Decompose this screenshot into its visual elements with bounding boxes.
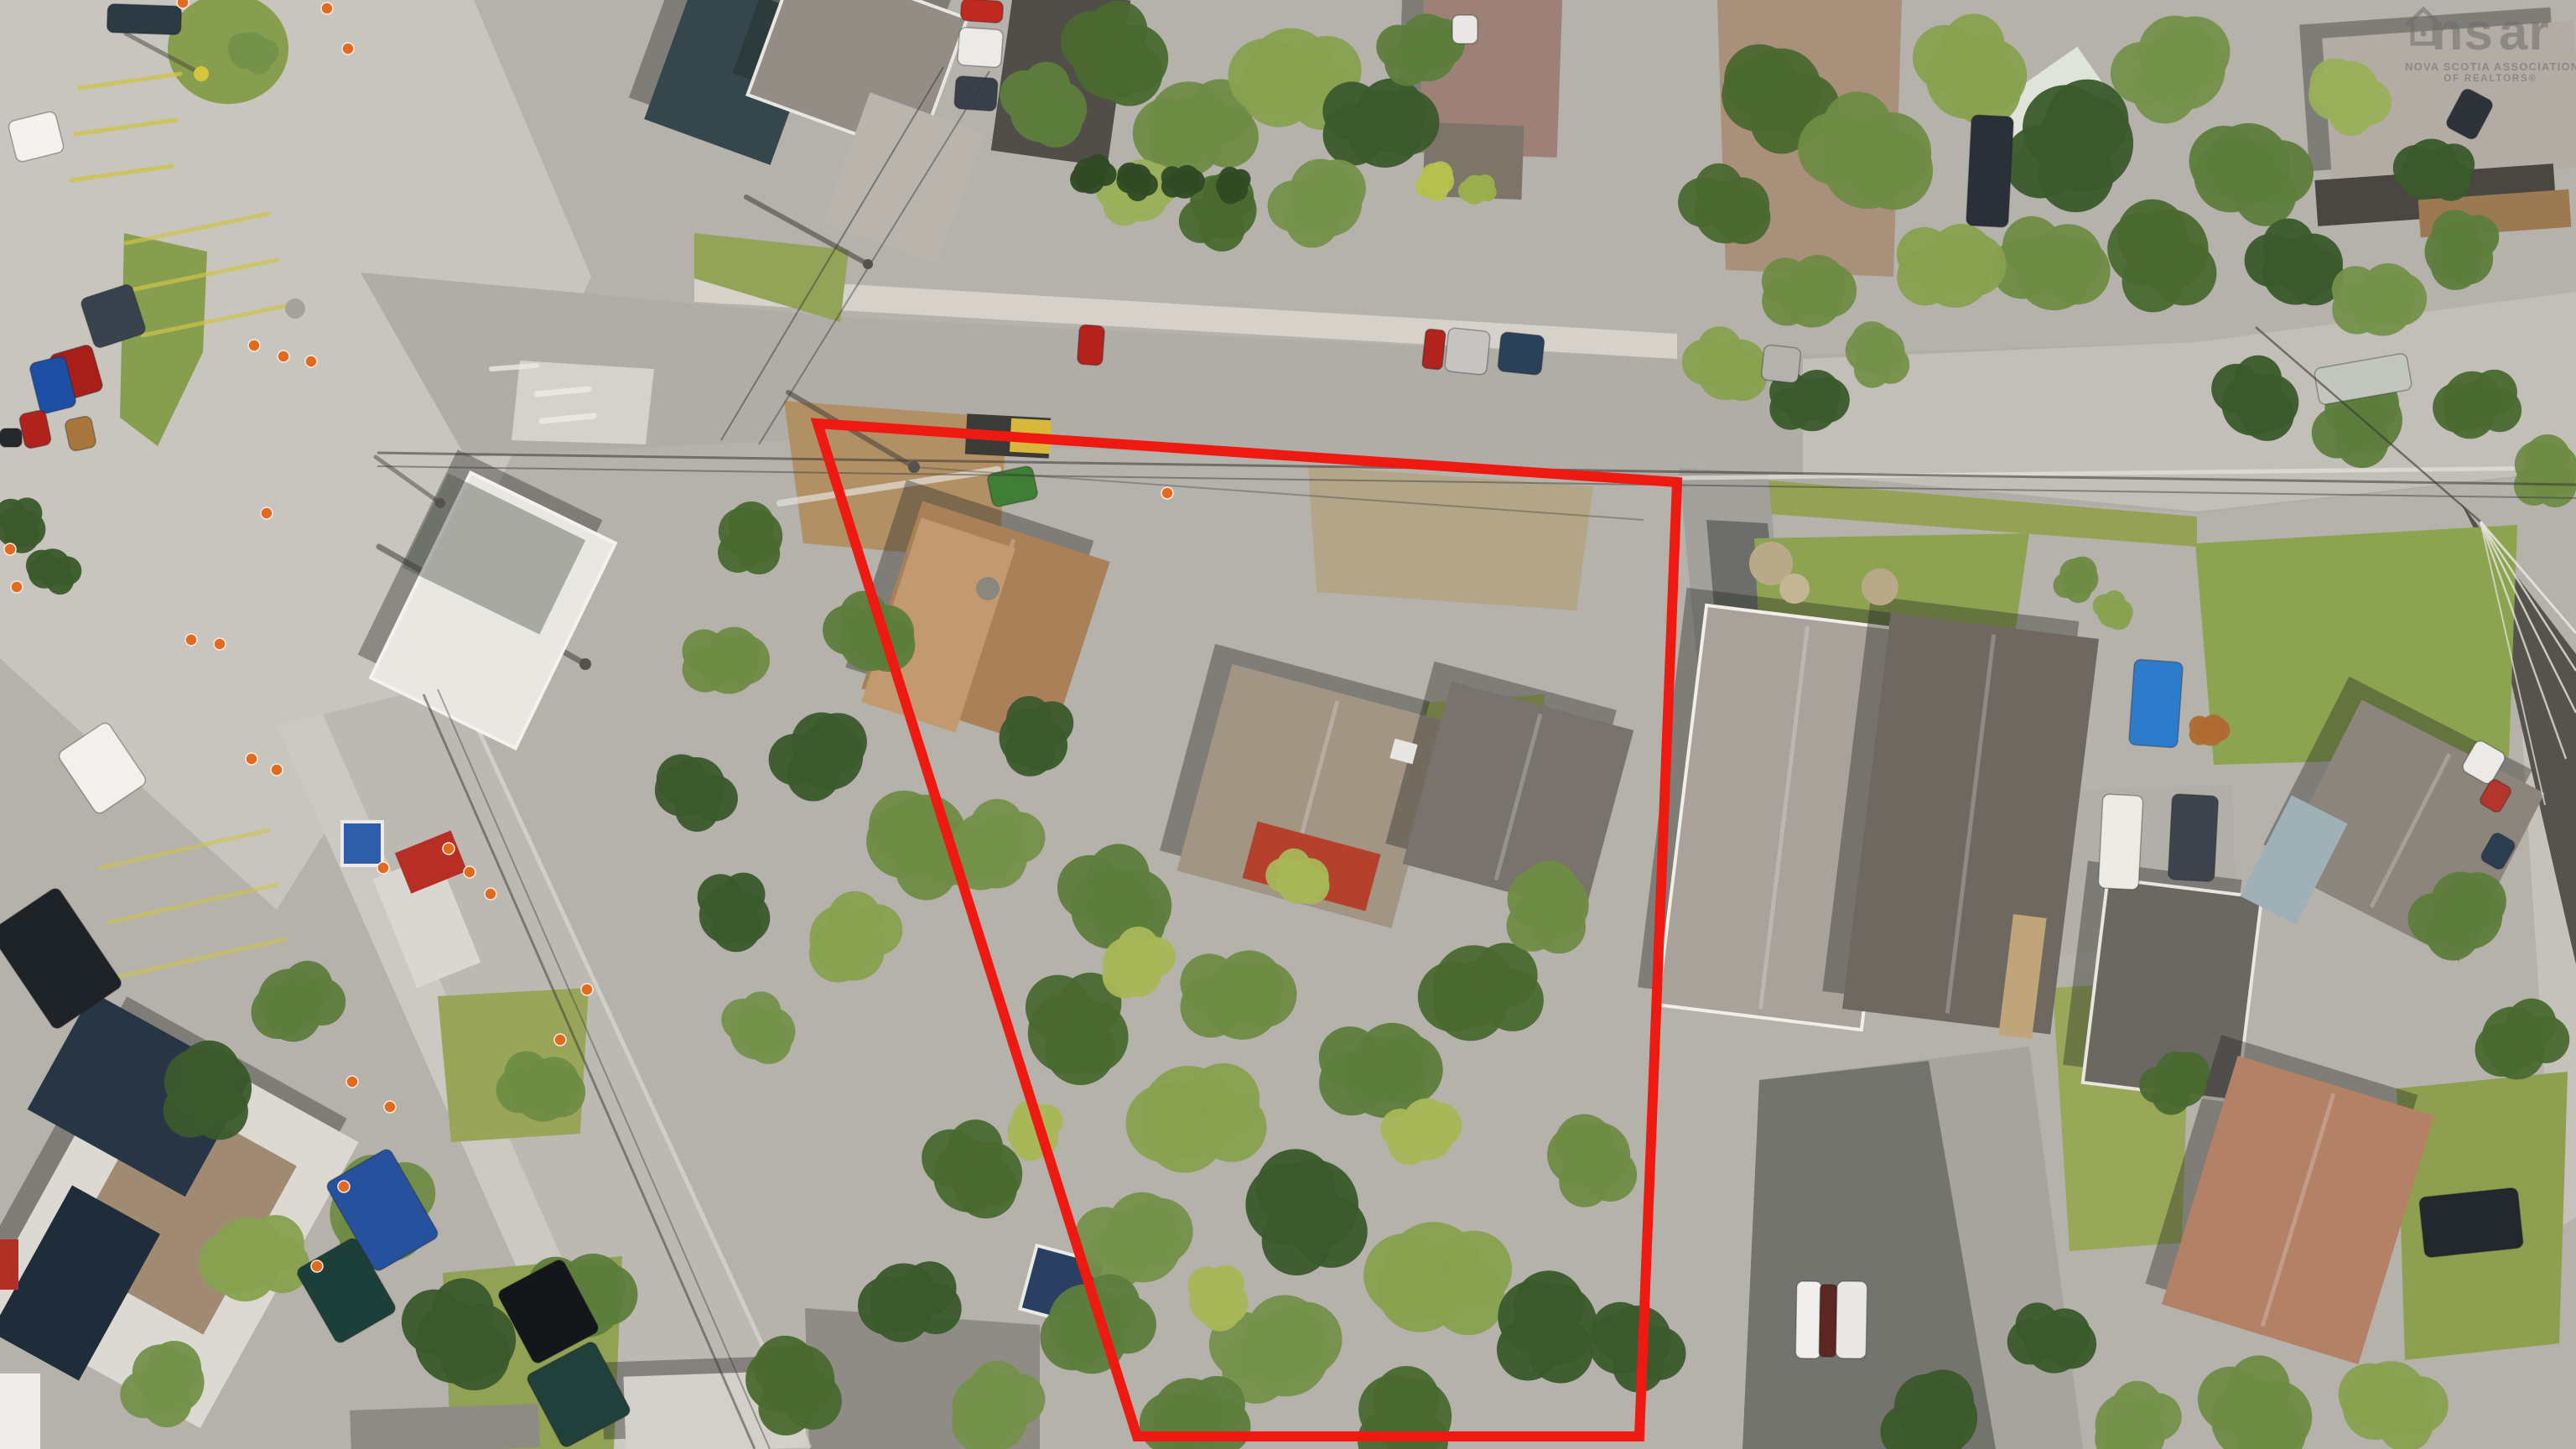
car (957, 27, 1003, 68)
tree (1231, 961, 1297, 1027)
nsar-watermark: ns ar NOVA SCOTIA ASSOCIATION OF REALTOR… (2405, 7, 2576, 84)
traffic-cone (338, 1181, 350, 1192)
car (1795, 1281, 1822, 1359)
tree (1197, 106, 1259, 168)
gravel-lot-center (1308, 466, 1593, 610)
tree (439, 1320, 510, 1390)
ground-feature (435, 498, 445, 508)
ground-feature (1862, 569, 1898, 605)
tree (1268, 1301, 1343, 1376)
ground-feature (194, 66, 209, 81)
tree (1762, 257, 1810, 305)
tree (2159, 17, 2230, 87)
traffic-cone (11, 581, 23, 593)
tree (1180, 169, 1205, 195)
car (2168, 794, 2218, 882)
tree (729, 501, 774, 547)
tree (1717, 351, 1767, 401)
tree (2522, 1015, 2570, 1063)
tree (1118, 163, 1143, 188)
traffic-cone (214, 638, 226, 650)
car (960, 0, 1004, 23)
car (64, 415, 96, 452)
tree (754, 1336, 816, 1398)
car (2129, 659, 2184, 748)
tree (1308, 159, 1366, 217)
tree (2044, 238, 2111, 304)
tree (2478, 388, 2521, 432)
tree (2068, 557, 2097, 586)
tree (657, 755, 706, 804)
tree (1416, 1103, 1462, 1148)
car (106, 3, 181, 34)
tree (2168, 1052, 2210, 1093)
traffic-cone (485, 888, 496, 900)
ground-feature (1779, 574, 1810, 604)
car (1452, 15, 1478, 44)
traffic-cone (443, 843, 454, 854)
tree (2475, 1023, 2529, 1077)
tree (2117, 200, 2188, 270)
tree (1045, 1015, 1115, 1085)
tree (1458, 180, 1480, 202)
tree (1126, 1084, 1205, 1163)
tree (1482, 969, 1544, 1031)
car (1444, 328, 1490, 376)
tree (1944, 234, 2006, 296)
tree (1555, 1114, 1613, 1172)
tree (1851, 321, 1892, 362)
tree (299, 978, 346, 1026)
tree (1197, 1093, 1267, 1162)
tree (858, 1277, 916, 1335)
traffic-cone (554, 1034, 566, 1046)
tree (1804, 377, 1849, 423)
traffic-cone (581, 984, 593, 995)
traffic-cone (278, 351, 289, 362)
tree (720, 635, 770, 684)
traffic-cone (248, 340, 260, 351)
tree (911, 1283, 962, 1334)
tree (1005, 727, 1055, 776)
tree (2207, 719, 2231, 742)
tree (1256, 1149, 1335, 1228)
traffic-cone (271, 764, 283, 776)
tree (1322, 81, 1381, 140)
tree (809, 713, 867, 771)
car (1498, 331, 1545, 375)
tree (1029, 94, 1083, 148)
tree (1376, 24, 1420, 68)
tree (2373, 272, 2427, 325)
tree (2339, 1363, 2401, 1426)
tree (1380, 1109, 1420, 1149)
traffic-cone (261, 507, 273, 519)
tree (1133, 98, 1203, 169)
aerial-property-photo: ns ar NOVA SCOTIA ASSOCIATION OF REALTOR… (0, 0, 2576, 1449)
tree (1897, 227, 1951, 282)
tree (2241, 387, 2294, 441)
tree (2449, 872, 2506, 930)
tree (255, 1239, 309, 1293)
tree (711, 902, 761, 952)
tree (955, 1156, 1017, 1218)
tree (1428, 161, 1453, 186)
traffic-cone (377, 862, 389, 874)
car (0, 428, 22, 447)
tree (746, 1019, 792, 1064)
traffic-cone (384, 1101, 396, 1113)
ground-feature (285, 299, 305, 319)
tree (26, 550, 58, 582)
traffic-cone (305, 356, 317, 367)
tree (1097, 40, 1163, 106)
building-shingle-roof-bottom (350, 1404, 540, 1449)
tree (683, 630, 726, 673)
tree (1478, 183, 1497, 202)
nsar-subtitle-line1: NOVA SCOTIA ASSOCIATION (2405, 60, 2576, 73)
tree (809, 924, 867, 982)
tree (1373, 1034, 1443, 1104)
tree (1418, 962, 1488, 1032)
traffic-cone (346, 1076, 358, 1088)
car (1836, 1281, 1867, 1359)
tree (1724, 44, 1794, 115)
traffic-cone (311, 1260, 323, 1272)
tree (2189, 126, 2260, 196)
tree (536, 1067, 585, 1117)
tree (1716, 190, 1770, 244)
tree (2047, 1319, 2096, 1368)
traffic-cone (464, 866, 475, 878)
ground-feature (908, 461, 920, 473)
nsar-subtitle-line2: OF REALTORS® (2405, 74, 2576, 84)
tree (1520, 861, 1578, 919)
tree (2189, 716, 2210, 736)
tree (869, 791, 939, 861)
tree (1363, 1233, 1446, 1317)
tree (1127, 1198, 1193, 1265)
car (2098, 794, 2143, 890)
tree (178, 1041, 240, 1103)
tree (1180, 953, 1239, 1012)
car (1077, 325, 1104, 366)
nsar-logo-right: ar (2499, 7, 2550, 59)
tree (2106, 605, 2132, 631)
concrete-crossing-pad (512, 361, 654, 444)
tree (148, 1341, 201, 1394)
nsar-logo: ns ar (2405, 7, 2576, 59)
tree (1103, 953, 1148, 998)
ground-feature (976, 577, 1000, 600)
tree (2046, 80, 2129, 163)
building-red-box-truck (0, 1239, 18, 1290)
tree (1228, 39, 1303, 113)
tree (1161, 166, 1183, 188)
car (2419, 1187, 2524, 1258)
traffic-cone (246, 753, 257, 765)
car (1819, 1285, 1836, 1357)
traffic-cone (177, 0, 189, 8)
car (1761, 345, 1801, 383)
traffic-cone (185, 634, 197, 646)
tree (1199, 1290, 1240, 1331)
tree (1292, 867, 1329, 904)
building-white-truck-left (0, 1374, 40, 1449)
ground-feature (579, 658, 591, 670)
tree (1093, 163, 1117, 186)
tree (1374, 89, 1440, 155)
tree (1912, 1369, 1974, 1431)
tree (1070, 166, 1097, 193)
car (1422, 329, 1446, 370)
tree (199, 1232, 261, 1294)
tree (1319, 1026, 1381, 1088)
ground-line (491, 366, 537, 369)
tree (2433, 382, 2482, 432)
tree (2332, 266, 2380, 314)
traffic-cone (1161, 487, 1173, 499)
car (1966, 115, 2014, 227)
tree (2525, 434, 2570, 480)
tree (1218, 181, 1242, 205)
tree (1514, 1270, 1584, 1341)
tree (2310, 59, 2360, 108)
tree (2393, 145, 2438, 190)
building-bucket-lift (342, 822, 382, 865)
ground-feature (863, 259, 873, 269)
tree (1803, 263, 1857, 317)
traffic-cone (321, 3, 333, 14)
traffic-cone (342, 43, 354, 55)
tree (1854, 131, 1933, 210)
tree (227, 33, 257, 62)
tree (2431, 241, 2480, 290)
aerial-scene (0, 0, 2576, 1449)
tree (1374, 1366, 1440, 1432)
traffic-cone (4, 543, 16, 555)
tree (252, 985, 305, 1039)
